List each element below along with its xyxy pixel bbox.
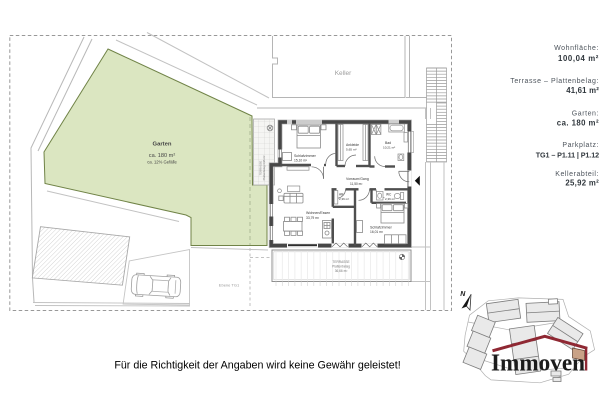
svg-text:2,36 m²: 2,36 m²: [385, 197, 395, 201]
svg-text:Bad: Bad: [385, 141, 391, 145]
svg-text:16,01 m²: 16,01 m²: [370, 230, 384, 234]
svg-text:Schlafzimmer: Schlafzimmer: [370, 226, 393, 230]
svg-text:TERRASSE: TERRASSE: [332, 260, 349, 264]
svg-text:41,61 m²: 41,61 m²: [566, 86, 599, 95]
svg-text:Ebene TG1: Ebene TG1: [219, 283, 240, 288]
svg-text:33,79 m²: 33,79 m²: [306, 216, 320, 220]
svg-text:Schlafzimmer: Schlafzimmer: [294, 154, 317, 158]
svg-text:36,66 m²: 36,66 m²: [335, 269, 348, 273]
svg-text:Für die Richtigkeit der Angabe: Für die Richtigkeit der Angaben wird kei…: [114, 360, 400, 372]
svg-text:Ankleide: Ankleide: [346, 143, 359, 147]
svg-text:ca. 12% Gefälle: ca. 12% Gefälle: [147, 160, 177, 165]
svg-text:TERRASSE: TERRASSE: [259, 161, 263, 176]
svg-text:Parkplatz:: Parkplatz:: [562, 142, 599, 149]
svg-text:Vorraum/Gang: Vorraum/Gang: [346, 177, 369, 181]
svg-text:10,21 m²: 10,21 m²: [383, 146, 395, 150]
svg-text:ca. 180 m²: ca. 180 m²: [149, 153, 176, 159]
svg-text:Wohnfläche:: Wohnfläche:: [554, 45, 599, 52]
svg-text:Plattenbelag: Plattenbelag: [332, 265, 350, 269]
svg-text:Wohnen/Essen: Wohnen/Essen: [306, 211, 330, 215]
svg-text:2,36 m²: 2,36 m²: [339, 197, 349, 201]
svg-text:ca. 180 m²: ca. 180 m²: [557, 119, 599, 128]
svg-text:Garten: Garten: [153, 142, 172, 148]
svg-text:25,92 m²: 25,92 m²: [565, 179, 599, 188]
svg-text:Plattenbelag 4,95 m²: Plattenbelag 4,95 m²: [262, 156, 266, 181]
svg-text:Terrasse – Plattenbelag:: Terrasse – Plattenbelag:: [510, 78, 599, 85]
svg-text:11,50 m²: 11,50 m²: [350, 182, 362, 186]
svg-text:Keller: Keller: [335, 70, 352, 77]
svg-text:TG1 – P1.11 | P1.12: TG1 – P1.11 | P1.12: [536, 151, 599, 160]
svg-text:Immoven: Immoven: [491, 350, 585, 377]
svg-text:100,04 m²: 100,04 m²: [558, 54, 599, 63]
svg-text:Kellerabteil:: Kellerabteil:: [555, 171, 599, 178]
svg-text:5,65 m²: 5,65 m²: [346, 148, 357, 152]
svg-text:Garten:: Garten:: [572, 111, 599, 118]
svg-text:15,10 m²: 15,10 m²: [294, 159, 308, 163]
